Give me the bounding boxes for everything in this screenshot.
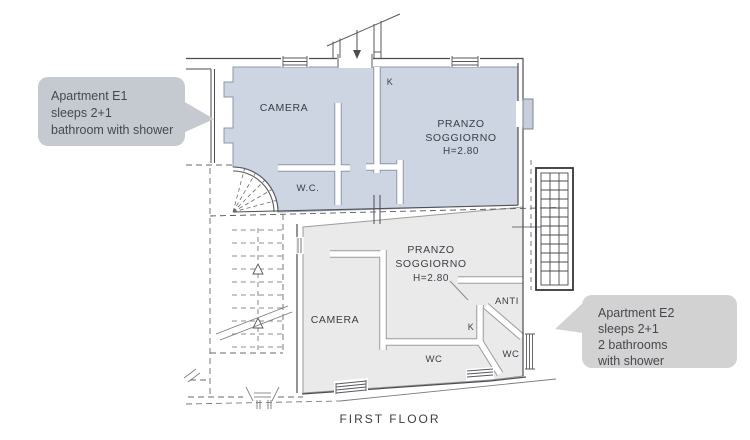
room-label-e2-camera: CAMERA xyxy=(311,314,360,326)
callout-line: Apartment E1 xyxy=(51,88,185,105)
callout-apartment-e2: Apartment E2 sleeps 2+1 2 bathrooms with… xyxy=(582,295,737,368)
exterior-top-stair xyxy=(327,14,400,58)
room-label-e1-height: H=2.80 xyxy=(443,146,479,157)
callout-line: bathroom with shower xyxy=(51,122,185,139)
callout-line: sleeps 2+1 xyxy=(51,105,185,122)
floorplan-page: CAMERA K PRANZO SOGGIORNO H=2.80 W.C. PR… xyxy=(0,0,750,440)
callout-pointer-e2 xyxy=(555,303,583,333)
callout-pointer-e1 xyxy=(183,101,214,133)
room-label-e1-soggiorno: SOGGIORNO xyxy=(425,132,496,144)
apartment-e2-region xyxy=(303,207,523,393)
callout-line: sleeps 2+1 xyxy=(598,321,737,337)
room-label-e1-camera: CAMERA xyxy=(260,102,309,114)
room-label-e2-pranzo: PRANZO xyxy=(407,244,454,256)
room-label-e1-pranzo: PRANZO xyxy=(437,118,484,130)
e1-right-wall xyxy=(518,59,523,208)
callout-line: with shower xyxy=(598,353,737,369)
room-label-e2-wc-left: WC xyxy=(425,354,442,365)
stair-break-lines xyxy=(184,306,292,382)
room-label-e2-k: K xyxy=(468,322,475,332)
room-label-e2-anti: ANTI xyxy=(495,296,519,307)
basement-window xyxy=(246,387,279,409)
room-label-e2-height: H=2.80 xyxy=(413,273,449,284)
callout-apartment-e1: Apartment E1 sleeps 2+1 bathroom with sh… xyxy=(38,77,185,146)
room-label-e1-k: K xyxy=(387,77,394,87)
stair-treads xyxy=(232,230,283,347)
room-label-e2-soggiorno: SOGGIORNO xyxy=(395,258,466,270)
room-label-e2-wc-right: WC xyxy=(502,349,519,360)
room-label-e1-wc: W.C. xyxy=(297,183,320,194)
caption-first-floor: FIRST FLOOR xyxy=(290,412,490,426)
terrain-line-dashed xyxy=(186,401,340,404)
callout-line: 2 bathrooms xyxy=(598,337,737,353)
callout-line: Apartment E2 xyxy=(598,305,737,321)
balcony xyxy=(531,160,573,290)
floorplan-drawing: CAMERA K PRANZO SOGGIORNO H=2.80 W.C. PR… xyxy=(0,0,750,440)
